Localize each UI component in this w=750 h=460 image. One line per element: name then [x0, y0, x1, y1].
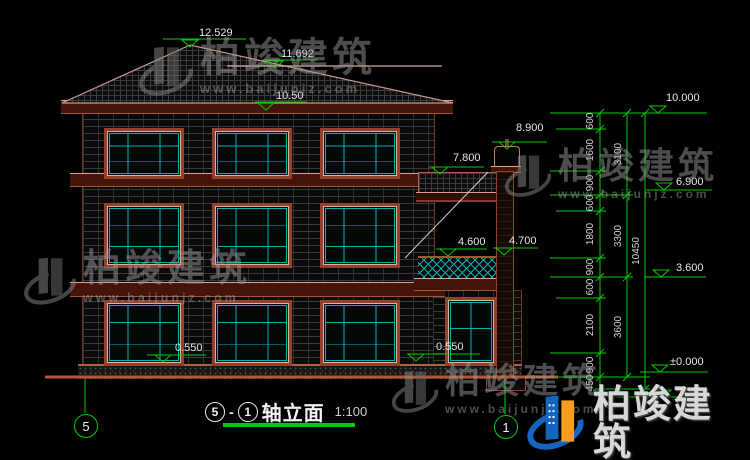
elevation-label-porch-roof: 7.800 [453, 152, 481, 164]
drawing-title: 5 - 1 轴立面 1:100 [205, 397, 367, 426]
title-axis-to: 1 [238, 402, 258, 422]
dim-3600: 3600 [613, 312, 625, 342]
elevation-label-level-second: 3.600 [676, 262, 704, 274]
dim-1800: 1800 [585, 219, 597, 249]
dim-3300: 3300 [613, 221, 625, 251]
dim-2100: 2100 [585, 310, 597, 340]
elevation-label-pillar-top: 8.900 [516, 122, 544, 134]
axis-bubble-right: 1 [494, 415, 518, 439]
title-scale: 1:100 [335, 404, 368, 419]
elevation-label-ridge: 12.529 [199, 27, 233, 39]
elevation-label-plinth-right: 0.550 [436, 341, 464, 353]
brand-logo: 柏竣建筑 www.baijunjz.com [526, 386, 750, 460]
brand-logo-icon [526, 386, 587, 458]
elevation-label-balcony-rail: 4.600 [458, 236, 486, 248]
dim-600: 600 [585, 106, 597, 136]
elevation-label-level-third: 6.900 [676, 176, 704, 188]
cad-elevation-drawing: 12.529 11.692 10.50 8.900 7.800 4.600 4.… [0, 0, 750, 460]
elevation-label-plinth-left: 0.550 [175, 342, 203, 354]
dim-600: 600 [585, 272, 597, 302]
dim-3100: 3100 [613, 139, 625, 169]
title-axis-from: 5 [205, 402, 225, 422]
main-roof [62, 45, 453, 103]
title-separator: - [229, 404, 234, 420]
dim-1600: 1600 [585, 135, 597, 165]
dim-total-10450: 10450 [631, 236, 643, 266]
elevation-label-level-ground: ±0.000 [670, 356, 704, 368]
title-underline [223, 423, 355, 427]
elevation-label-upper-ridge: 11.692 [281, 48, 314, 60]
dim-600: 600 [585, 188, 597, 218]
elevation-label-eave: 10.50 [276, 90, 304, 102]
elevation-label-level-top: 10.000 [666, 92, 700, 104]
elevation-label-balcony-col: 4.700 [509, 235, 537, 247]
title-text: 轴立面 [262, 397, 325, 426]
axis-bubble-left: 5 [74, 414, 98, 438]
brand-logo-text: 柏竣建筑 [593, 386, 750, 460]
